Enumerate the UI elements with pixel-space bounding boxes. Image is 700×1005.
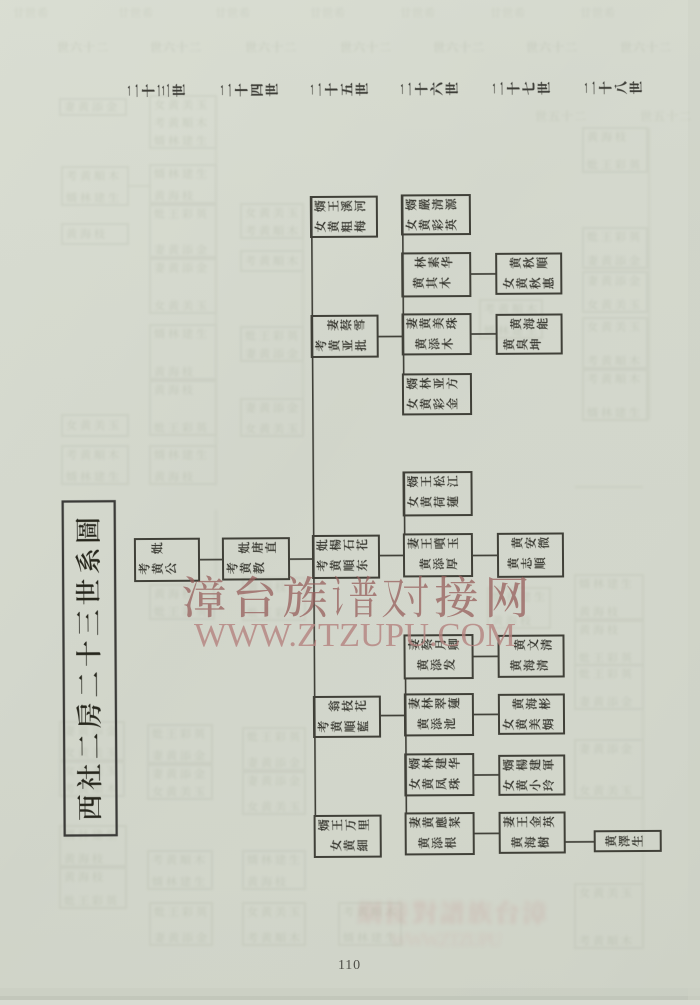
svg-text:WWW.ZTZUPU.COM: WWW.ZTZUPU.COM: [194, 617, 516, 654]
svg-text:WWW.ZTZUPU: WWW.ZTZUPU: [390, 930, 502, 951]
svg-text:110: 110: [338, 958, 361, 973]
